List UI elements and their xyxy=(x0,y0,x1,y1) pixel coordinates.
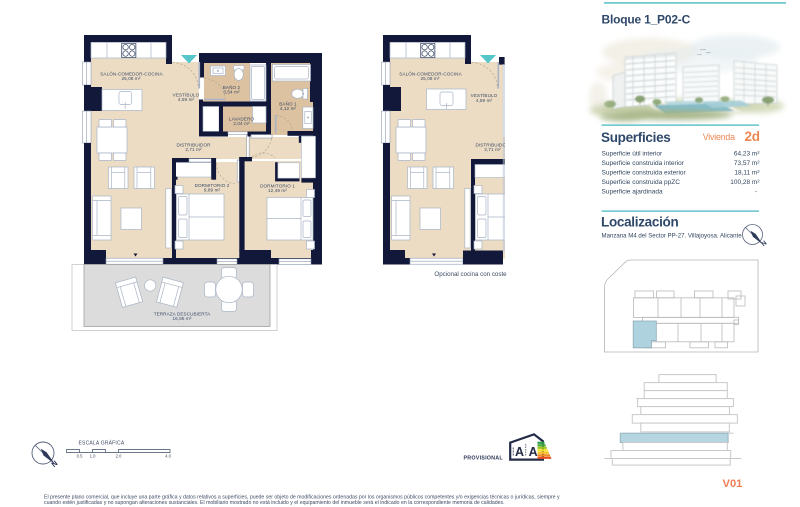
svg-text:4,12 m²: 4,12 m² xyxy=(280,106,297,111)
svg-text:64,23 m²: 64,23 m² xyxy=(734,150,760,157)
svg-text:9,89 m²: 9,89 m² xyxy=(204,188,221,193)
svg-text:Superficie ajardinada: Superficie ajardinada xyxy=(602,189,663,196)
svg-text:N: N xyxy=(50,459,60,469)
svg-text:V01: V01 xyxy=(723,478,743,490)
svg-text:0.5: 0.5 xyxy=(77,454,83,459)
svg-text:ESCALA GRÁFICA: ESCALA GRÁFICA xyxy=(79,440,125,447)
svg-text:N: N xyxy=(760,239,768,248)
svg-text:1.0: 1.0 xyxy=(90,454,96,459)
svg-text:A: A xyxy=(515,445,524,459)
svg-text:Vivienda: Vivienda xyxy=(703,132,735,142)
svg-text:Superficie construida exterior: Superficie construida exterior xyxy=(602,170,687,177)
svg-text:Superficie útil interior: Superficie útil interior xyxy=(602,150,664,157)
svg-text:Superficie construida ppZC: Superficie construida ppZC xyxy=(602,179,681,186)
svg-text:-: - xyxy=(755,189,757,196)
svg-text:3,54 m²: 3,54 m² xyxy=(223,89,240,94)
svg-text:25,08 m²: 25,08 m² xyxy=(421,76,440,81)
svg-text:2,04 m²: 2,04 m² xyxy=(233,121,250,126)
svg-text:12,49 m²: 12,49 m² xyxy=(268,188,287,193)
svg-text:Superficies: Superficies xyxy=(601,130,670,145)
svg-text:PROVISIONAL: PROVISIONAL xyxy=(464,456,504,462)
svg-text:Localización: Localización xyxy=(601,215,678,230)
svg-text:2.0: 2.0 xyxy=(116,454,122,459)
svg-text:4,59 m²: 4,59 m² xyxy=(476,98,493,103)
svg-text:100,28 m²: 100,28 m² xyxy=(730,179,760,186)
svg-text:4.0: 4.0 xyxy=(165,454,171,459)
svg-text:Bloque 1_P02-C: Bloque 1_P02-C xyxy=(602,13,691,27)
svg-text:25,08 m²: 25,08 m² xyxy=(122,76,141,81)
svg-text:Manzana M4 del Sector PP-27. V: Manzana M4 del Sector PP-27. Villajoyosa… xyxy=(602,233,743,240)
svg-text:4,59 m²: 4,59 m² xyxy=(178,97,195,102)
svg-text:2d: 2d xyxy=(745,129,760,144)
svg-text:73,57 m²: 73,57 m² xyxy=(734,160,760,167)
svg-text:Opcional cocina con coste: Opcional cocina con coste xyxy=(434,271,507,278)
svg-text:16,86 m²: 16,86 m² xyxy=(173,316,192,321)
svg-text:cuando estén justificadas y no: cuando estén justificadas y no supongan … xyxy=(44,500,505,506)
svg-text:Superficie construida interior: Superficie construida interior xyxy=(602,160,685,167)
svg-text:2,71 m²: 2,71 m² xyxy=(185,147,202,152)
svg-text:18,11 m²: 18,11 m² xyxy=(734,170,760,177)
svg-text:2,71 m²: 2,71 m² xyxy=(484,147,501,152)
svg-text:A: A xyxy=(529,445,538,459)
